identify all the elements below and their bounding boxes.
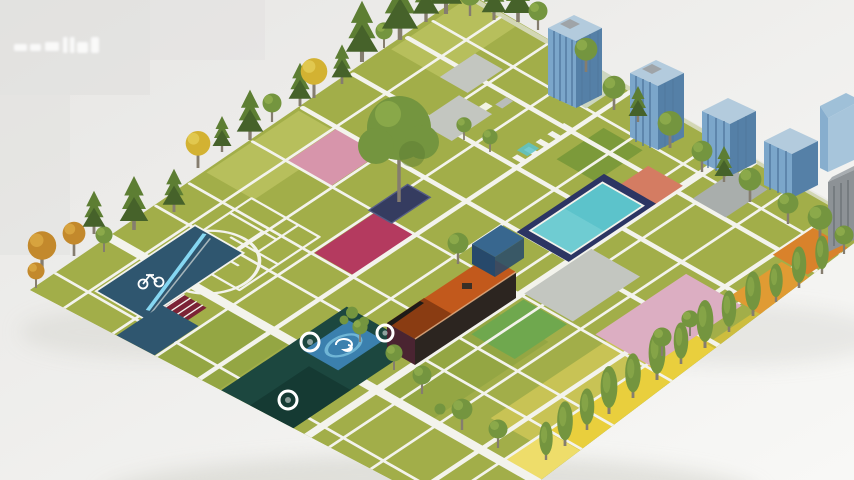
shrub xyxy=(340,315,349,324)
tower xyxy=(820,93,854,172)
site-model-svg xyxy=(0,0,854,480)
isometric-masterplan-render xyxy=(0,0,854,480)
background-block xyxy=(150,0,265,60)
background-block xyxy=(0,95,70,255)
shrub xyxy=(435,404,446,415)
tower xyxy=(548,15,602,108)
roof-vent xyxy=(462,283,472,289)
tower xyxy=(764,128,818,198)
shrub xyxy=(346,307,358,319)
